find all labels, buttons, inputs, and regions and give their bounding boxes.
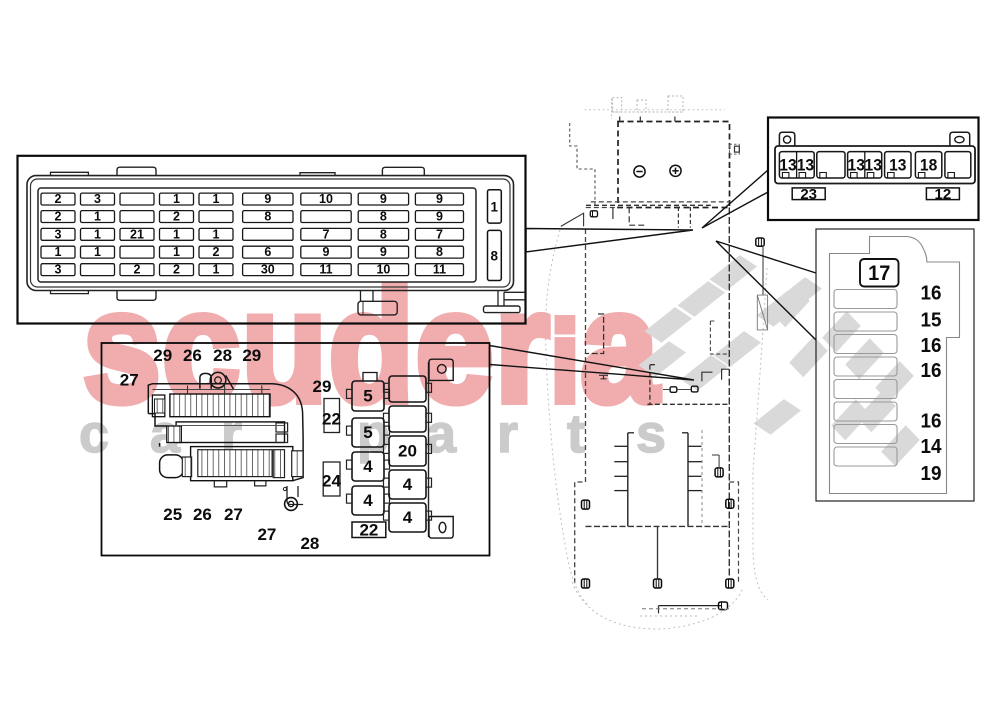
svg-text:1: 1	[490, 199, 498, 214]
svg-text:7: 7	[323, 227, 330, 241]
svg-text:9: 9	[436, 192, 443, 206]
svg-text:27: 27	[120, 371, 139, 390]
svg-text:30: 30	[261, 263, 275, 277]
svg-text:27: 27	[257, 525, 276, 544]
svg-text:8: 8	[264, 210, 271, 224]
svg-text:27: 27	[224, 505, 243, 524]
svg-text:5: 5	[363, 387, 372, 406]
svg-text:16: 16	[921, 282, 942, 305]
svg-text:9: 9	[380, 192, 387, 206]
svg-text:3: 3	[55, 263, 62, 277]
svg-text:13: 13	[889, 156, 906, 175]
svg-text:13: 13	[779, 156, 796, 175]
svg-text:4: 4	[403, 475, 413, 494]
svg-text:16: 16	[921, 334, 942, 357]
svg-text:22: 22	[322, 410, 341, 429]
svg-text:1: 1	[213, 263, 220, 277]
svg-text:2: 2	[173, 263, 180, 277]
svg-text:2: 2	[55, 210, 62, 224]
svg-text:5: 5	[363, 423, 372, 442]
svg-text:16: 16	[921, 410, 942, 433]
svg-text:19: 19	[921, 462, 942, 485]
svg-text:23: 23	[800, 186, 817, 203]
svg-text:1: 1	[94, 227, 101, 241]
svg-text:1: 1	[94, 245, 101, 259]
svg-text:8: 8	[490, 248, 498, 263]
svg-text:28: 28	[213, 346, 232, 365]
svg-text:13: 13	[797, 156, 814, 175]
svg-text:6: 6	[264, 245, 271, 259]
svg-text:1: 1	[94, 210, 101, 224]
svg-text:4: 4	[363, 457, 373, 476]
svg-text:2: 2	[173, 210, 180, 224]
svg-text:2: 2	[55, 192, 62, 206]
svg-text:8: 8	[380, 210, 387, 224]
svg-text:24: 24	[322, 472, 341, 491]
svg-text:9: 9	[264, 192, 271, 206]
svg-text:29: 29	[153, 346, 172, 365]
svg-text:29: 29	[242, 346, 261, 365]
svg-text:18: 18	[920, 156, 937, 175]
svg-text:1: 1	[55, 245, 62, 259]
svg-text:26: 26	[193, 505, 212, 524]
svg-text:2: 2	[134, 263, 141, 277]
svg-text:17: 17	[868, 261, 890, 285]
svg-text:22: 22	[359, 521, 378, 540]
svg-text:28: 28	[300, 534, 319, 553]
svg-text:21: 21	[130, 227, 144, 241]
svg-text:2: 2	[213, 245, 220, 259]
svg-text:25: 25	[163, 505, 182, 524]
svg-text:13: 13	[865, 156, 882, 175]
svg-text:4: 4	[363, 491, 373, 510]
svg-text:10: 10	[376, 263, 390, 277]
svg-text:1: 1	[173, 227, 180, 241]
svg-text:9: 9	[436, 210, 443, 224]
svg-text:11: 11	[319, 263, 332, 277]
svg-text:14: 14	[921, 435, 942, 458]
svg-text:29: 29	[313, 377, 332, 396]
svg-text:8: 8	[380, 227, 387, 241]
svg-text:11: 11	[433, 263, 446, 277]
svg-text:1: 1	[173, 192, 180, 206]
svg-text:4: 4	[403, 508, 413, 527]
svg-text:1: 1	[213, 227, 220, 241]
svg-text:9: 9	[323, 245, 330, 259]
svg-text:1: 1	[173, 245, 180, 259]
svg-text:8: 8	[436, 245, 443, 259]
svg-text:20: 20	[398, 442, 417, 461]
svg-text:13: 13	[848, 156, 865, 175]
svg-text:12: 12	[935, 186, 952, 203]
svg-text:9: 9	[380, 245, 387, 259]
svg-text:15: 15	[921, 309, 942, 332]
svg-text:16: 16	[921, 359, 942, 382]
svg-text:3: 3	[55, 227, 62, 241]
svg-text:3: 3	[94, 192, 101, 206]
svg-text:1: 1	[213, 192, 220, 206]
svg-text:10: 10	[319, 192, 333, 206]
svg-text:26: 26	[183, 346, 202, 365]
svg-text:7: 7	[436, 227, 443, 241]
